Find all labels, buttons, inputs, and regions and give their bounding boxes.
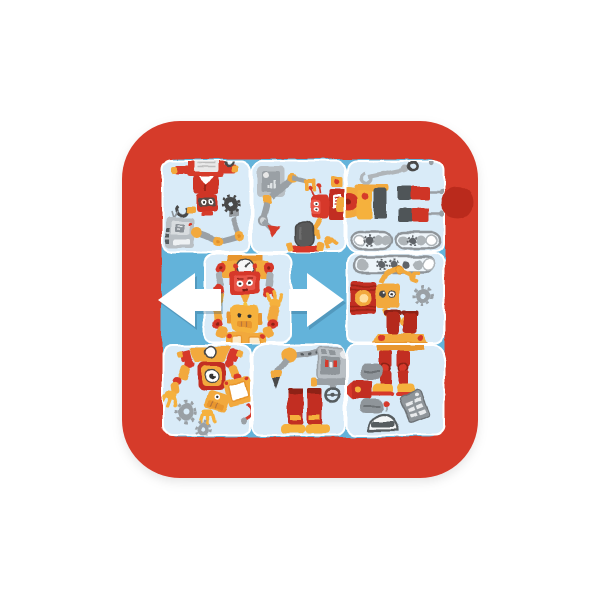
gear-icon xyxy=(414,287,431,304)
tile-top-left[interactable] xyxy=(163,157,250,252)
tile-top-middle[interactable] xyxy=(252,161,346,253)
gear-icon xyxy=(176,402,196,422)
frame-notch xyxy=(441,187,473,219)
tile-middle-right[interactable] xyxy=(347,254,444,346)
tile-bottom-left[interactable] xyxy=(157,345,255,436)
tile-top-right[interactable] xyxy=(333,159,445,252)
tile-bottom-middle[interactable] xyxy=(252,345,354,435)
tile-bottom-right[interactable] xyxy=(344,345,444,435)
puzzle-scene xyxy=(0,0,600,600)
puzzle-photo xyxy=(0,0,600,600)
